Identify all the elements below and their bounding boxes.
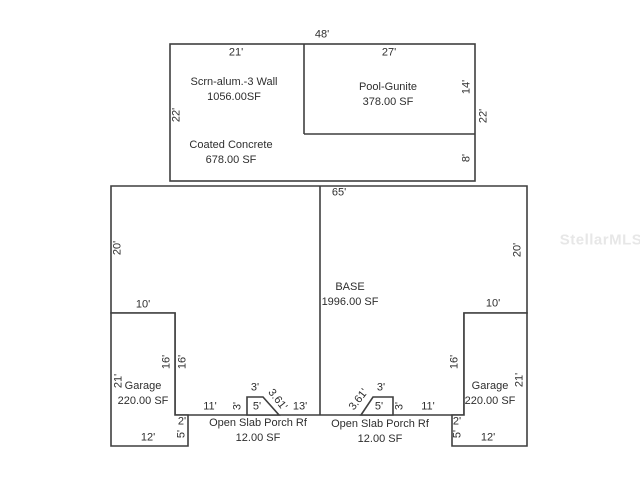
area-sf: 220.00 SF (118, 394, 169, 409)
area-sf: 12.00 SF (209, 431, 307, 446)
dim-porch-center-span: 13' (293, 402, 307, 413)
area-sf: 678.00 SF (189, 153, 272, 168)
area-name: Coated Concrete (189, 138, 272, 153)
dim-porch-left-top: 3' (251, 383, 259, 394)
dim-step-left-height: 5' (177, 430, 188, 438)
stellar-mls-watermark: StellarMLS (560, 232, 640, 249)
area-name: Open Slab Porch Rf (209, 416, 307, 431)
dim-porch-left-side: 3' (233, 402, 244, 410)
area-label-garage-right: Garage 220.00 SF (465, 379, 516, 409)
area-name: Garage (118, 379, 169, 394)
area-sf: 1056.00SF (191, 90, 278, 105)
area-label-pool: Pool-Gunite 378.00 SF (359, 80, 417, 110)
area-sf: 378.00 SF (359, 95, 417, 110)
dim-porch-right-top: 3' (377, 383, 385, 394)
dim-pool-width: 27' (382, 48, 396, 59)
dim-notch-right: 16' (450, 355, 461, 369)
area-label-garage-left: Garage 220.00 SF (118, 379, 169, 409)
dim-garage-right-bottom: 12' (481, 433, 495, 444)
dim-base-height-left: 20' (113, 241, 124, 255)
dim-screen-height: 22' (172, 108, 183, 122)
dim-garage-right-top: 10' (486, 299, 500, 310)
dim-notch-left-outer: 16' (178, 355, 189, 369)
dim-base-height-right: 20' (513, 243, 524, 257)
dim-porch-left-bottom: 5' (253, 402, 261, 413)
dim-garage-left-top: 10' (136, 300, 150, 311)
area-label-screen: Scrn-alum.-3 Wall 1056.00SF (191, 75, 278, 105)
area-name: BASE (322, 280, 379, 295)
area-name: Scrn-alum.-3 Wall (191, 75, 278, 90)
area-label-porch-left: Open Slab Porch Rf 12.00 SF (209, 416, 307, 446)
area-sf: 220.00 SF (465, 394, 516, 409)
area-name: Garage (465, 379, 516, 394)
area-name: Pool-Gunite (359, 80, 417, 95)
dim-step-right-height: 5' (453, 430, 464, 438)
dim-top-total-width: 48' (315, 30, 329, 41)
dim-step-right-width: 2' (453, 417, 461, 428)
dim-notch-left-inner: 16' (162, 355, 173, 369)
area-sf: 12.00 SF (331, 432, 429, 447)
dim-porch-right-side: 3' (395, 402, 406, 410)
dim-garage-left-bottom: 12' (141, 433, 155, 444)
dim-deck-height: 8' (462, 154, 473, 162)
dim-porch-left-offset: 11' (203, 402, 217, 413)
area-label-base: BASE 1996.00 SF (322, 280, 379, 310)
floorplan-outline (0, 0, 640, 480)
dim-screen-width: 21' (229, 48, 243, 59)
floorplan-sketch: 48' 21' 27' 22' 14' 22' 8' Scrn-alum.-3 … (0, 0, 640, 480)
dim-garage-right-height: 21' (515, 373, 526, 387)
area-label-concrete: Coated Concrete 678.00 SF (189, 138, 272, 168)
dim-porch-right-bottom: 5' (375, 402, 383, 413)
dim-porch-right-offset: 11' (421, 402, 435, 413)
dim-pool-height: 14' (462, 80, 473, 94)
area-sf: 1996.00 SF (322, 295, 379, 310)
dim-step-left-width: 2' (178, 417, 186, 428)
area-name: Open Slab Porch Rf (331, 417, 429, 432)
dim-top-right-height: 22' (479, 109, 490, 123)
area-label-porch-right: Open Slab Porch Rf 12.00 SF (331, 417, 429, 447)
dim-base-width: 65' (332, 188, 346, 199)
